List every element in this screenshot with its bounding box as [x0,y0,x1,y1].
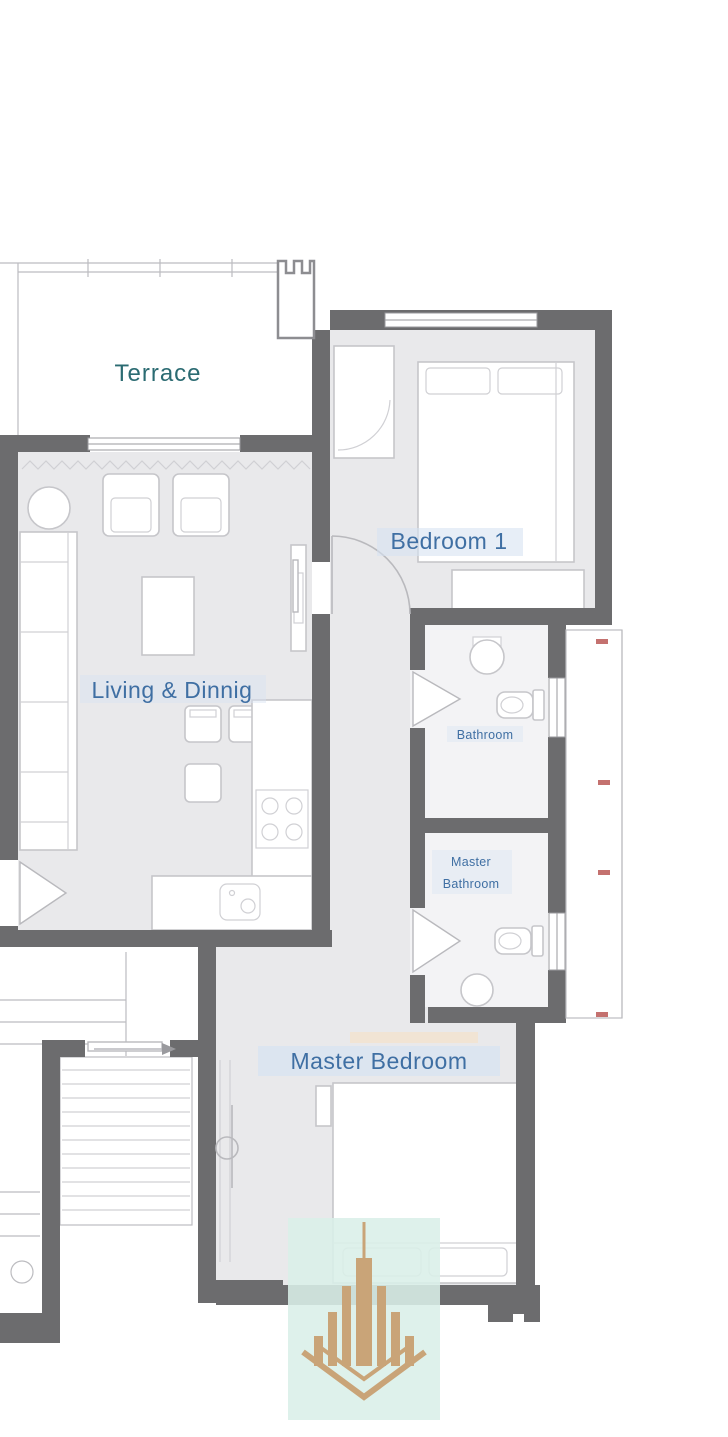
window-marker [598,870,610,875]
window-marker [596,639,608,644]
sink-basin [461,974,493,1006]
room-label-master-bedroom: Master Bedroom [290,1048,467,1074]
toilet [497,690,544,720]
room-label-master-bathroom-line2: Bathroom [443,877,500,891]
dining-chair [185,764,221,802]
bedroom-1-window [385,313,537,327]
toilet [495,926,543,956]
exterior-ledge [566,630,622,1018]
room-label-bedroom-1: Bedroom 1 [390,528,507,554]
stairs-entry-door [88,1042,176,1055]
cooktop [256,790,308,848]
sofa [20,532,77,850]
room-label-bathroom: Bathroom [457,728,514,742]
kitchen-sink [220,884,260,920]
armchair [173,474,229,536]
lower-terrace-planters [0,952,126,1283]
bench [452,570,584,610]
living-window [88,438,240,450]
staircase [60,1057,192,1225]
wardrobe [334,346,394,458]
master-bathroom-window [549,913,565,970]
hallway-floor [330,608,410,947]
window-marker [598,780,610,785]
floor-plan-page: Terrace Bedroom 1 Living & Dinnig Bathro… [0,0,728,1437]
round-side-table [28,487,70,529]
armchair [103,474,159,536]
room-label-terrace: Terrace [114,360,201,387]
rug-accent [350,1032,478,1043]
bathroom-window [549,678,565,737]
terrace-outline [0,259,282,435]
watermark [288,1218,440,1420]
nightstand [316,1086,331,1126]
floor-plan-svg: Terrace Bedroom 1 Living & Dinnig Bathro… [0,0,728,1437]
window-marker [596,1012,608,1017]
room-label-master-bathroom-line1: Master [451,855,491,869]
coffee-table [142,577,194,655]
sink-basin [470,637,504,674]
castellation-foot [488,1305,540,1322]
castellated-column [278,261,314,338]
living-hall-door-leaf [293,560,298,612]
room-label-living-dining: Living & Dinnig [92,677,253,703]
